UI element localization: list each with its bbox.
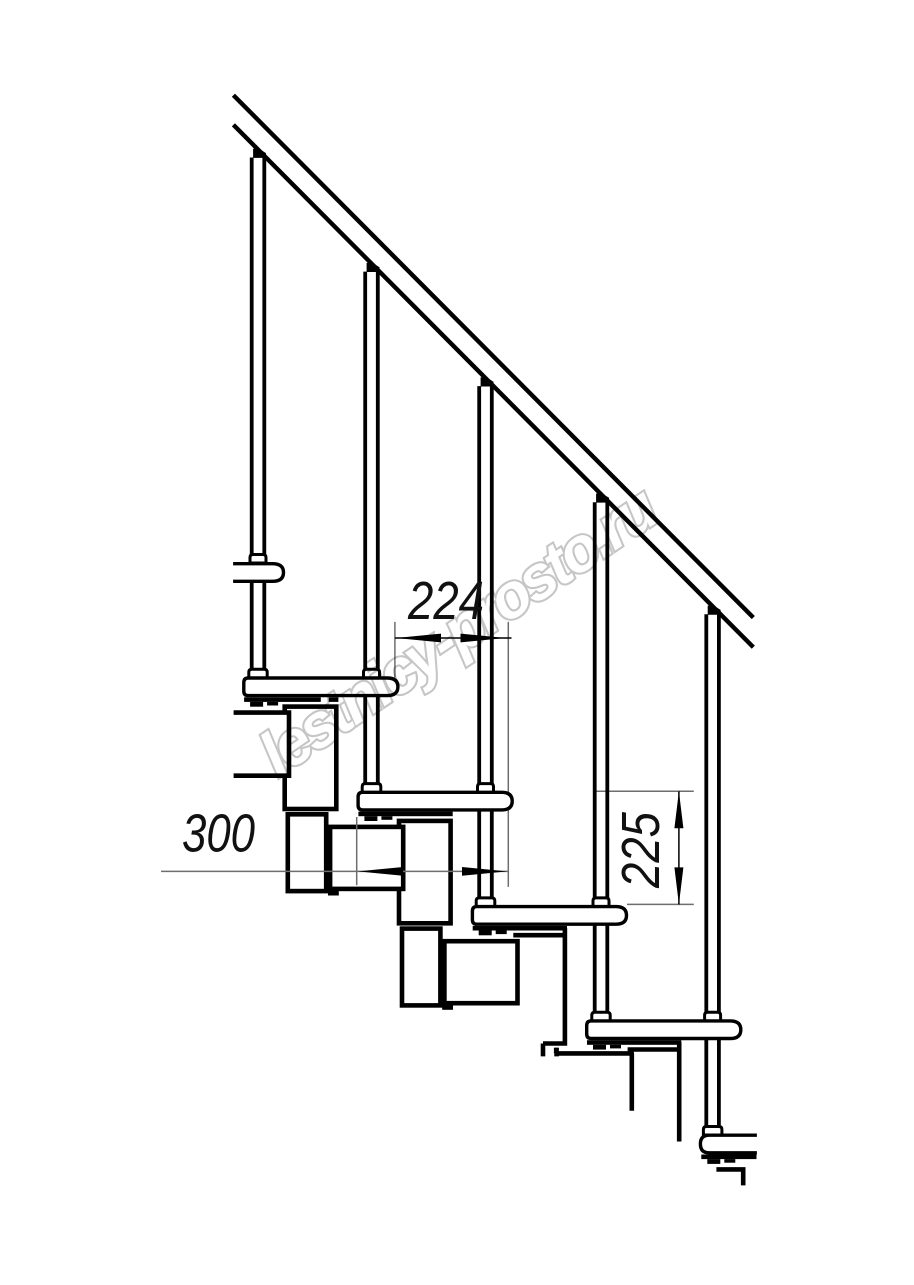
svg-text:225: 225: [611, 811, 671, 889]
svg-text:300: 300: [182, 804, 255, 864]
